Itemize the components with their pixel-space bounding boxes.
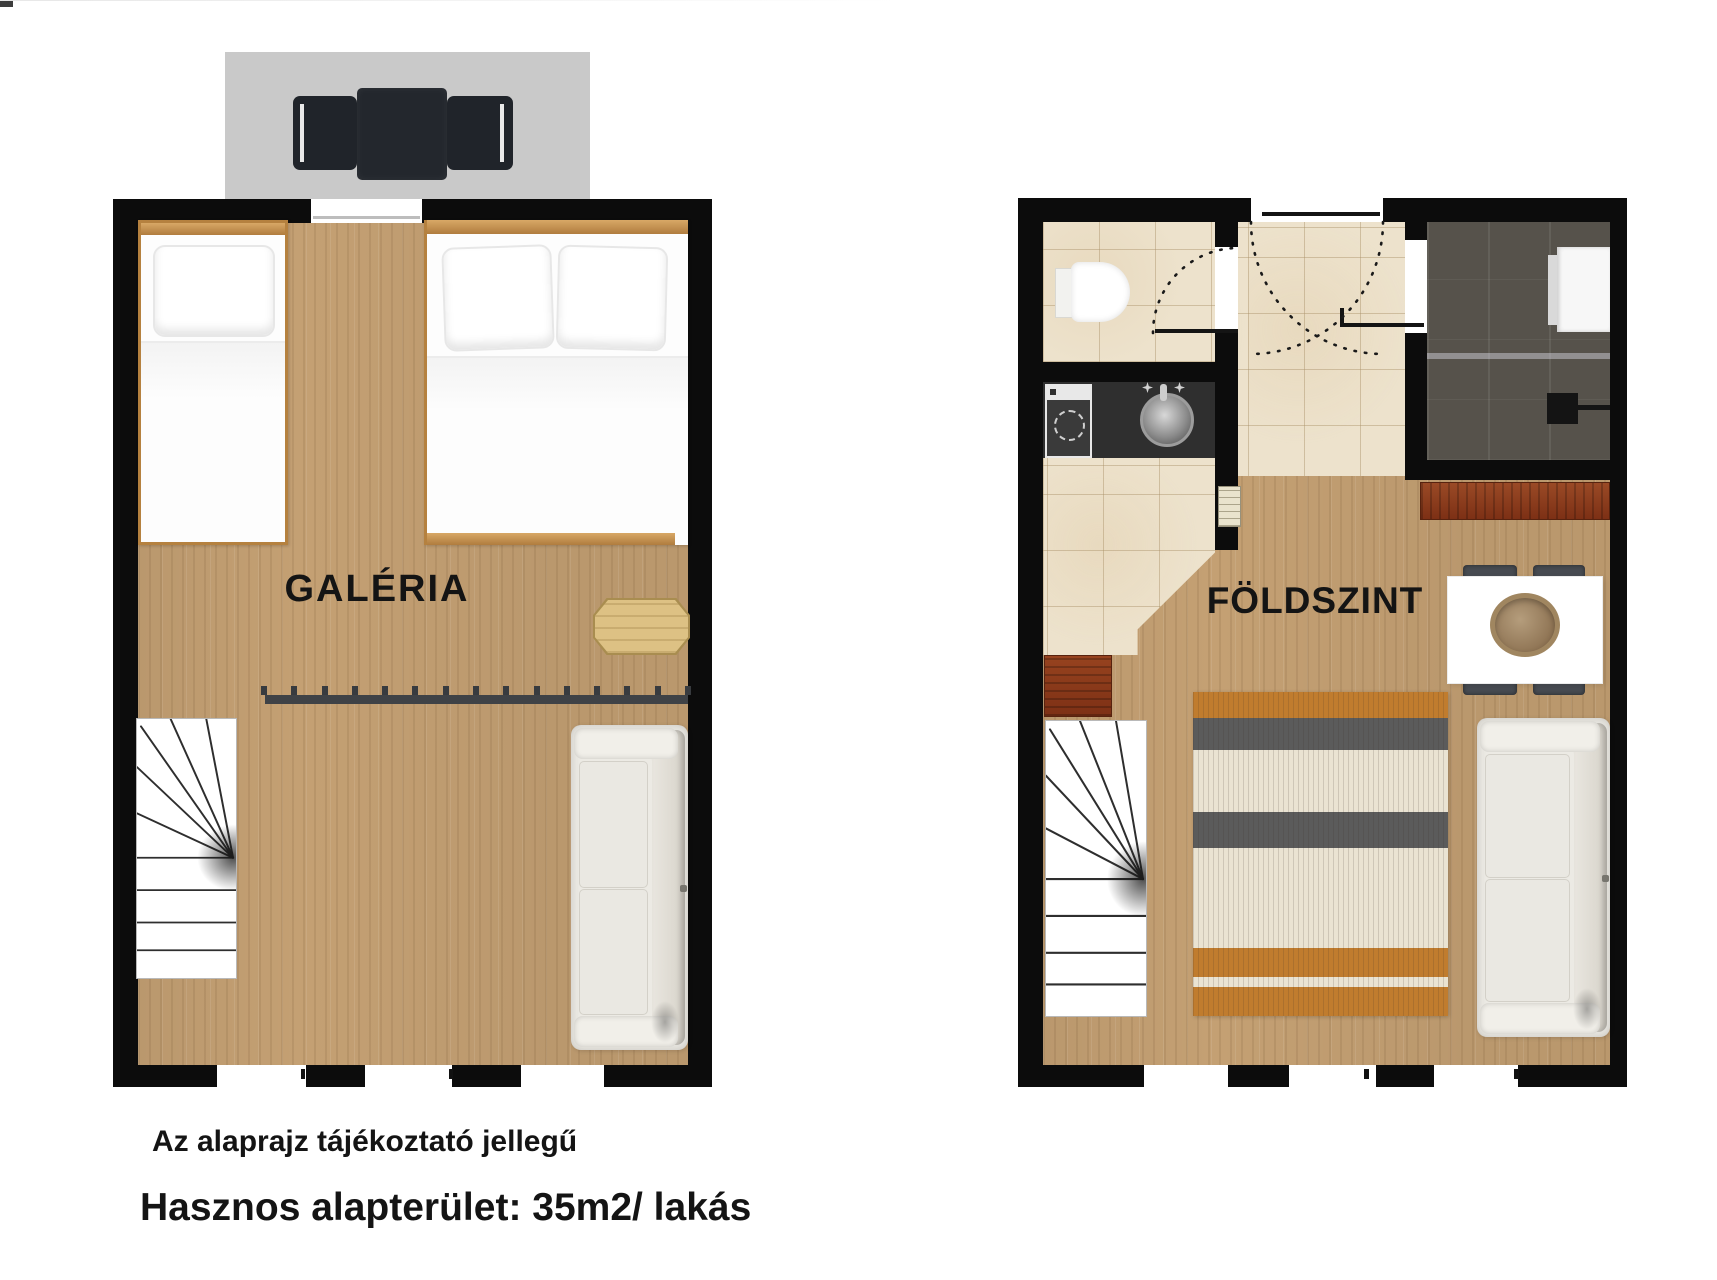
faucet-handle-icon — [1174, 382, 1185, 393]
bathroom-wall-right-a — [1215, 222, 1238, 247]
sideboard — [1420, 482, 1610, 520]
window-opening — [217, 1065, 306, 1087]
shower-glass-line — [1427, 353, 1610, 359]
double-bed-footboard — [427, 533, 675, 545]
shower-wall-left-a — [1405, 222, 1427, 240]
side-table — [593, 598, 690, 655]
plan-disclaimer: Az alaprajz tájékoztató jellegű — [152, 1125, 577, 1159]
sofa — [571, 725, 688, 1050]
window-opening — [521, 1065, 604, 1087]
sofa-armrest-top — [1480, 721, 1600, 752]
dining-table — [1448, 577, 1602, 683]
single-bed-headboard — [141, 223, 285, 235]
entrance-threshold — [1262, 212, 1380, 216]
faucet-spout-icon — [1160, 384, 1167, 401]
washing-machine-dot — [1050, 389, 1056, 395]
hall-floor — [1238, 222, 1405, 476]
towel — [1557, 247, 1610, 332]
washing-machine-drum — [1054, 410, 1085, 441]
entrance-door-leaf — [1340, 323, 1424, 327]
double-bed-blanket — [427, 356, 688, 545]
sofa-leg — [1602, 875, 1609, 882]
bathroom-wall-right-b — [1215, 333, 1238, 362]
sofa-cushion — [1485, 879, 1570, 1003]
striped-rug — [1193, 692, 1448, 1016]
sofa-armrest-bottom — [574, 1016, 678, 1047]
rug-weave-texture — [1193, 692, 1448, 1016]
serving-bowl-icon — [1490, 593, 1560, 657]
window-tick — [1364, 1069, 1369, 1079]
double-bed-headboard — [427, 220, 688, 234]
washing-machine-icon — [1045, 384, 1092, 458]
sofa-armrest-bottom — [1480, 1003, 1600, 1034]
sofa — [1477, 718, 1610, 1037]
shower-wall-bottom — [1405, 460, 1627, 480]
window-opening — [365, 1065, 452, 1087]
single-bed-blanket — [141, 341, 285, 542]
bathroom-door-opening — [1215, 247, 1238, 333]
loft-railing — [265, 695, 688, 704]
room-label-foldszint: FÖLDSZINT — [1165, 582, 1465, 619]
bathroom-wall-bottom — [1043, 362, 1238, 382]
towel-shelf — [1548, 255, 1557, 325]
edge-crosshair-mark — [0, 0, 13, 7]
winder-stairs — [1046, 721, 1146, 1016]
winder-stairs — [137, 719, 236, 978]
shower-room — [1427, 222, 1610, 460]
outdoor-armrest-left — [300, 104, 304, 162]
galeria-plan: GALÉRIA — [113, 199, 712, 1087]
sofa-leg — [680, 885, 687, 892]
shower-door-opening — [1405, 240, 1427, 333]
floorplan-canvas: GALÉRIA — [0, 0, 1717, 1280]
window-opening — [1144, 1065, 1228, 1087]
window-opening — [1289, 1065, 1376, 1087]
usable-area-caption: Hasznos alapterület: 35m2/ lakás — [140, 1186, 751, 1230]
outdoor-table — [357, 88, 447, 180]
radiator — [1218, 486, 1241, 527]
faint-grid-line — [0, 0, 900, 1]
window-tick — [449, 1069, 453, 1079]
side-table-top — [595, 600, 688, 653]
entrance-opening — [1251, 198, 1383, 222]
terrace-door-opening — [311, 199, 422, 223]
railing-posts — [261, 686, 691, 695]
toilet-bowl — [1071, 262, 1130, 322]
double-bed — [424, 220, 688, 545]
sofa-cushion — [1485, 754, 1570, 878]
terrace-door-panel — [313, 216, 420, 219]
sofa-armrest-top — [574, 728, 678, 759]
double-bed-pillow-right — [556, 245, 669, 352]
single-bed — [138, 220, 288, 545]
room-label-galeria: GALÉRIA — [227, 570, 527, 608]
kitchen-counter — [1043, 382, 1215, 458]
sofa-cushion — [579, 889, 648, 1016]
shower-fixture-arm — [1578, 405, 1610, 410]
double-bed-pillow-left — [441, 244, 555, 352]
window-tick — [1514, 1069, 1519, 1079]
window-tick — [301, 1069, 305, 1079]
window-opening — [1434, 1065, 1518, 1087]
terrace — [225, 52, 590, 199]
entrance-door-leaf-end — [1340, 308, 1344, 327]
toilet — [1055, 262, 1130, 322]
sink-icon — [1140, 393, 1194, 447]
faucet-handle-icon — [1142, 382, 1153, 393]
shower-wall-left-b — [1405, 333, 1427, 480]
sofa-cushion — [579, 761, 648, 888]
foldszint-plan: FÖLDSZINT — [1018, 198, 1627, 1087]
shower-fixture — [1547, 393, 1578, 424]
single-bed-pillow — [153, 245, 275, 337]
wardrobe-cabinet — [1044, 655, 1112, 717]
outdoor-armrest-right — [500, 104, 504, 162]
